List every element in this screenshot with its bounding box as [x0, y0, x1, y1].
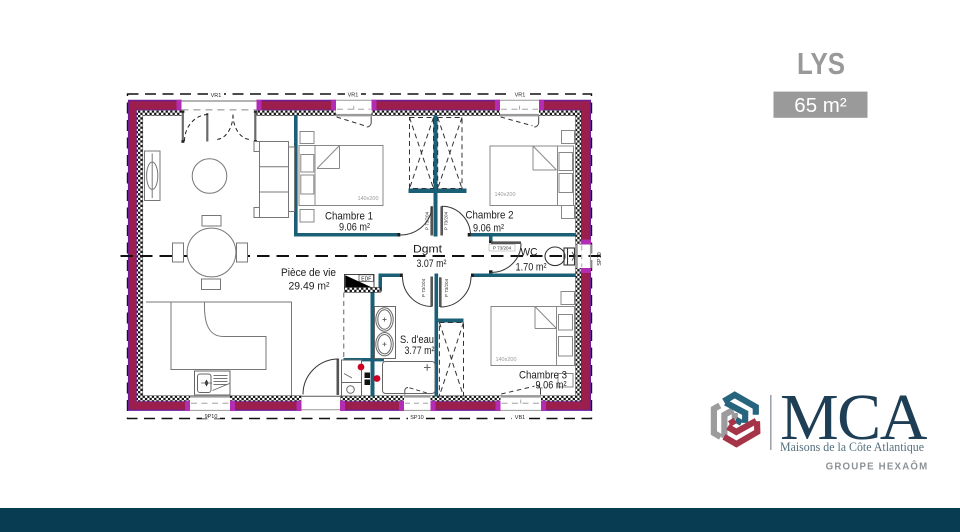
svg-text:SP10: SP10 — [597, 252, 603, 265]
svg-text:Maisons de la Côte Atlantique: Maisons de la Côte Atlantique — [780, 440, 924, 454]
svg-text:SP10: SP10 — [410, 415, 423, 421]
svg-text:VB1: VB1 — [515, 415, 525, 421]
svg-text:29.49 m²: 29.49 m² — [289, 281, 330, 293]
svg-text:VR1: VR1 — [211, 93, 222, 99]
svg-text:P 73/204: P 73/204 — [421, 278, 426, 297]
svg-text:Dgmt: Dgmt — [413, 244, 442, 256]
svg-text:3.07 m²: 3.07 m² — [417, 258, 447, 270]
svg-text:9P10: 9P10 — [205, 414, 218, 420]
svg-text:WC: WC — [521, 247, 538, 259]
svg-text:VR1: VR1 — [515, 93, 526, 99]
svg-text:P 73/204: P 73/204 — [444, 211, 449, 230]
svg-text:Pièce de vie: Pièce de vie — [281, 267, 336, 279]
svg-text:P 73/204: P 73/204 — [425, 211, 430, 230]
svg-text:EDF: EDF — [361, 276, 371, 282]
svg-text:9.06 m²: 9.06 m² — [339, 222, 370, 234]
svg-text:65 m²: 65 m² — [794, 94, 847, 117]
svg-text:LYS: LYS — [797, 46, 845, 81]
svg-text:140x200: 140x200 — [495, 357, 516, 363]
svg-text:140x200: 140x200 — [494, 192, 515, 198]
svg-text:GROUPE HEXAÔM: GROUPE HEXAÔM — [826, 461, 929, 473]
svg-text:3.77 m²: 3.77 m² — [405, 345, 435, 357]
svg-text:140x200: 140x200 — [357, 196, 378, 202]
svg-text:9.06 m²: 9.06 m² — [473, 223, 504, 235]
svg-text:Chambre 2: Chambre 2 — [466, 210, 514, 222]
svg-text:1.70 m²: 1.70 m² — [516, 262, 547, 274]
svg-text:P 73/204: P 73/204 — [493, 246, 512, 251]
svg-text:9.06 m²: 9.06 m² — [536, 380, 567, 392]
svg-text:VR1: VR1 — [348, 93, 359, 99]
svg-text:P 73/204: P 73/204 — [444, 278, 449, 297]
